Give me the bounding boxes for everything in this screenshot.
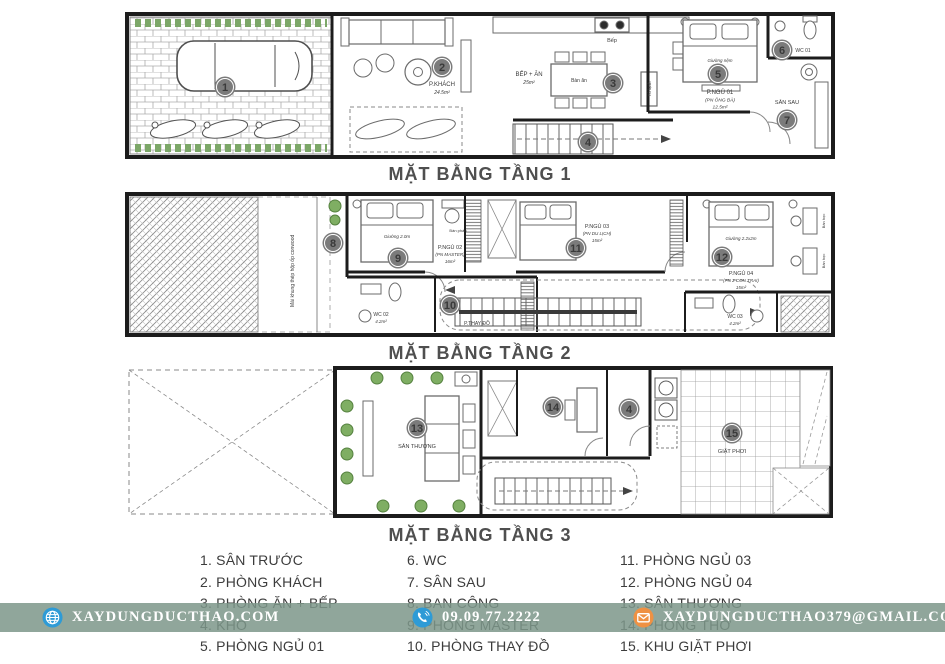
svg-text:12: 12 [716,252,728,264]
globe-icon [42,607,63,628]
master-bed-label: Giường 2.0m [384,234,411,239]
svg-text:9: 9 [395,253,401,265]
backyard-label: SÂN SAU [775,99,799,106]
room-marker: 11 [566,238,587,259]
footer-phone: 09.09.77.2222 [412,603,541,632]
legend-item: 15. KHU GIẶT PHƠI [620,636,752,658]
svg-text:3: 3 [610,78,616,90]
backyard [768,64,828,148]
floor2-drawing: Mái khung thép hộp ốp conwood [125,192,835,337]
footer-website-text: XAYDUNGDUCTHAO.COM [72,609,280,626]
vanity-table [442,200,464,208]
floor3-drawing: SÂN THƯỢNG GIẶT PHƠI 13 14 4 15 [125,366,835,518]
room-marker: 1 [215,77,236,98]
long-table [425,396,459,481]
bedroom-03 [516,202,685,272]
bedroom4-sub: (PN 2 CON TRAI) [723,278,759,283]
door-arc [630,426,650,446]
laundry-appliances [655,378,677,448]
kitchen-area: 25m² [522,80,535,86]
floor2-title: MẶT BẰNG TẦNG 2 [125,343,835,364]
tv-cabinet [461,40,471,92]
stairs-floor3 [477,458,650,510]
phone-icon [412,607,433,628]
wc2-area: 4.2m² [375,319,387,324]
desk [803,208,817,234]
plant [329,200,341,212]
bedroom1-sub: (PN ÔNG BÀ) [705,97,735,104]
svg-text:11: 11 [570,243,582,255]
laundry-label: GIẶT PHƠI [718,448,747,455]
master-area: 16m² [445,259,456,264]
toilet [389,283,401,301]
sink [361,284,381,294]
desk-label: Bàn học [821,254,826,269]
wc3-label: WC 03 [727,314,743,320]
altar-table [577,388,597,432]
floor1-drawing: P.KHÁCH 24.5m² Bếp BẾP + ĂN 25m² Bàn ăn … [125,12,835,159]
email-icon [633,607,654,628]
bedroom3-area: 15m² [592,238,603,243]
vanity-label: Bàn phấn [449,228,466,233]
room-marker: 13 [407,418,428,439]
living-area: 24.5m² [433,90,450,96]
wc2-label: WC 02 [373,312,389,318]
car [177,41,312,91]
svg-text:15: 15 [726,428,738,440]
bedroom4-area: 15m² [736,285,747,290]
stove-label: Bếp [607,38,617,44]
bedroom-04 [670,194,817,274]
armchair [354,59,372,77]
conwood-roof: Mái khung thép hộp ốp conwood [130,197,330,332]
armchair [376,54,394,72]
void-hatch [781,296,829,332]
legend-item: 6. WC [407,550,550,572]
door-arc [585,438,603,456]
svg-text:1: 1 [222,82,228,94]
legend-item: 11. PHÒNG NGỦ 03 [620,550,752,572]
room-marker: 8 [323,233,344,254]
footer-phone-text: 09.09.77.2222 [442,609,541,626]
master-sub: (PN MASTER) [435,252,465,257]
toilet [723,295,735,313]
svg-text:14: 14 [547,402,560,414]
living-label: P.KHÁCH [429,81,455,88]
room-marker: 15 [722,423,743,444]
room-marker: 10 [440,295,461,316]
skylight-void [488,200,516,258]
terrace-label: SÂN THƯỢNG [398,443,436,450]
room-marker: 3 [603,73,624,94]
desk [803,248,817,274]
room-marker: 12 [712,247,733,268]
sofa [349,20,445,44]
legend-item: 2. PHÒNG KHÁCH [200,572,338,594]
desk-chair [791,216,801,226]
legend-item: 5. PHÒNG NGỦ 01 [200,636,338,658]
footer-website: XAYDUNGDUCTHAO.COM [42,603,280,632]
svg-text:4: 4 [585,137,592,149]
bedroom3-sub: (PN DU LỊCH) [583,231,612,236]
legend-item: 12. PHÒNG NGỦ 04 [620,572,752,594]
svg-text:2: 2 [439,62,445,74]
wc1-label: WC 01 [795,48,811,54]
laundry-yard [681,370,830,514]
svg-text:10: 10 [444,300,456,312]
wardrobe [670,200,683,266]
dining-table-label: Bàn ăn [571,78,587,84]
room-marker: 7 [777,110,798,131]
kitchen-dining [493,17,689,108]
roof-note: Mái khung thép hộp ốp conwood [290,235,296,307]
open-void [129,370,335,514]
legend-item: 7. SÂN SAU [407,572,550,594]
floor3-plan: SÂN THƯỢNG GIẶT PHƠI 13 14 4 15 [125,366,835,518]
room-marker: 4 [578,132,599,153]
footer-email-text: XAYDUNGDUCTHAO379@GMAIL.COM [663,609,945,626]
svg-text:8: 8 [330,238,336,250]
floorplan-poster: P.KHÁCH 24.5m² Bếp BẾP + ĂN 25m² Bàn ăn … [0,0,945,664]
svg-text:6: 6 [779,45,785,57]
kitchen-label: BẾP + ĂN [515,71,542,78]
room-marker: 6 [772,40,793,61]
svg-text:4: 4 [626,404,633,416]
wc3-area: 4.2m² [729,321,741,326]
bedroom1-label: P.NGỦ 01 [707,89,734,96]
shower [751,310,763,322]
dressing-label: P.THAY ĐỒ [464,320,490,327]
fridge-label: Tủ lạnh [646,81,652,97]
floor3-title: MẶT BẰNG TẦNG 3 [125,525,835,546]
vanity-stool [445,209,459,223]
bedroom1-area: 12.5m² [713,105,728,111]
wardrobe [465,200,481,262]
svg-text:5: 5 [715,69,721,81]
sink [695,298,713,308]
shower [359,310,371,322]
room-marker: 4 [619,399,640,420]
master-label: P.NGỦ 02 [438,244,462,251]
floor1-plan: P.KHÁCH 24.5m² Bếp BẾP + ĂN 25m² Bàn ăn … [125,12,835,159]
room-marker: 14 [543,397,564,418]
svg-text:13: 13 [411,423,423,435]
svg-text:7: 7 [784,115,790,127]
room-marker: 9 [388,248,409,269]
bed4-label: Giường 2.2x2m [725,236,756,241]
shower [775,21,785,31]
floor1-title: MẶT BẰNG TẦNG 1 [125,164,835,185]
room-marker: 5 [708,64,729,85]
bench [363,401,373,476]
footer-email: XAYDUNGDUCTHAO379@GMAIL.COM [633,603,945,632]
room-marker: 2 [432,57,453,78]
wc-03 [685,292,833,332]
legend-item: 10. PHÒNG THAY ĐỒ [407,636,550,658]
bedroom3-label: P.NGỦ 03 [585,223,609,230]
desk-chair [791,256,801,266]
bed-label: Giường nệm [707,58,732,63]
toilet [804,21,816,39]
floor2-plan: Mái khung thép hộp ốp conwood [125,192,835,337]
footer-bar: XAYDUNGDUCTHAO.COM 09.09.77.2222 XAYDU [0,603,945,632]
plant [330,215,340,225]
bedroom4-label: P.NGỦ 04 [729,270,753,277]
legend-item: 1. SÂN TRƯỚC [200,550,338,572]
desk-label: Bàn học [821,214,826,229]
kitchen-counter [493,17,689,33]
door-arc [750,112,770,132]
